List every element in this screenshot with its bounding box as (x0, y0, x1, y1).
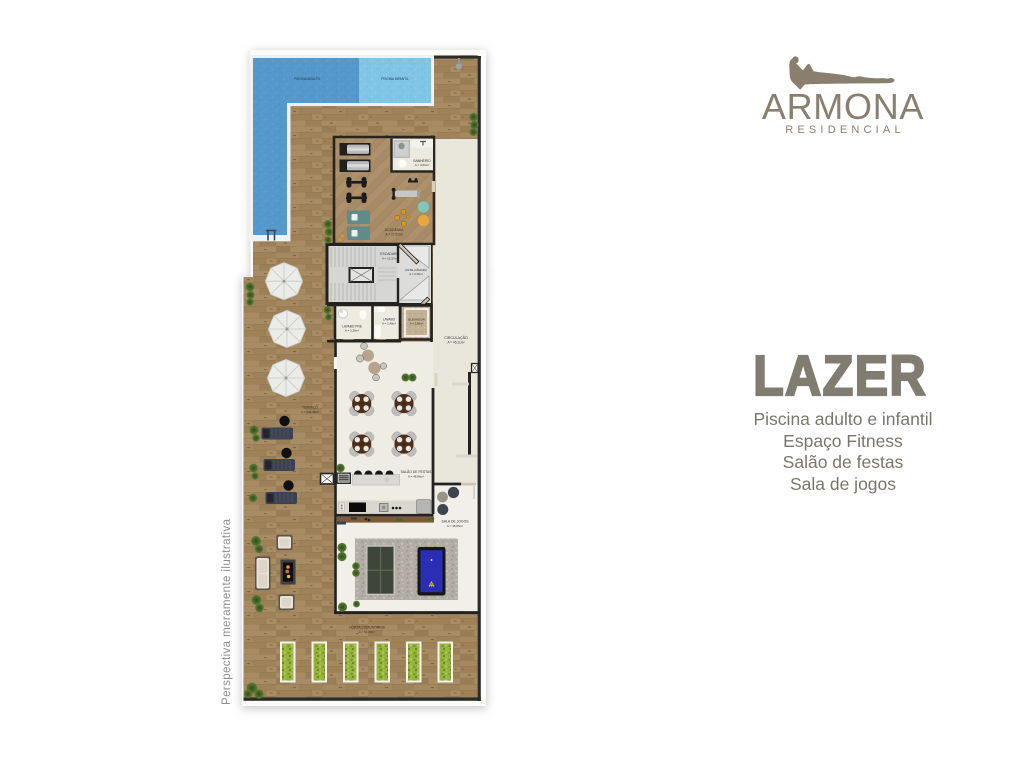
svg-text:A = 3,20m²: A = 3,20m² (345, 329, 359, 333)
svg-text:CIRCULAÇÃO: CIRCULAÇÃO (444, 335, 468, 340)
svg-text:A = 2,40m²: A = 2,40m² (382, 322, 396, 326)
svg-text:ACADEMIA: ACADEMIA (385, 228, 404, 232)
svg-text:A = 3,36m²: A = 3,36m² (409, 272, 423, 276)
svg-text:A = 27,91m²: A = 27,91m² (385, 233, 402, 237)
svg-text:PISCINA ADULTO: PISCINA ADULTO (294, 77, 320, 81)
svg-text:HORTA COMUNITÁRIA: HORTA COMUNITÁRIA (349, 626, 386, 630)
svg-text:A = 52,20m²: A = 52,20m² (359, 630, 375, 634)
svg-text:A = 141,46m²: A = 141,46m² (301, 410, 319, 414)
svg-text:A = 2,88m²: A = 2,88m² (410, 322, 424, 326)
svg-text:A = 3,60m²: A = 3,60m² (415, 163, 430, 167)
svg-text:A = 13,37m²: A = 13,37m² (382, 257, 398, 261)
svg-text:A = 48,86m²: A = 48,86m² (447, 524, 463, 528)
svg-text:A = 45,11m²: A = 45,11m² (447, 341, 464, 345)
svg-text:A = 48,86m²: A = 48,86m² (408, 475, 424, 479)
svg-text:PISCINA INFANTIL: PISCINA INFANTIL (381, 77, 409, 81)
svg-text:SALA DE JOGOS: SALA DE JOGOS (442, 520, 470, 524)
svg-text:SALÃO DE FESTAS: SALÃO DE FESTAS (401, 469, 433, 474)
